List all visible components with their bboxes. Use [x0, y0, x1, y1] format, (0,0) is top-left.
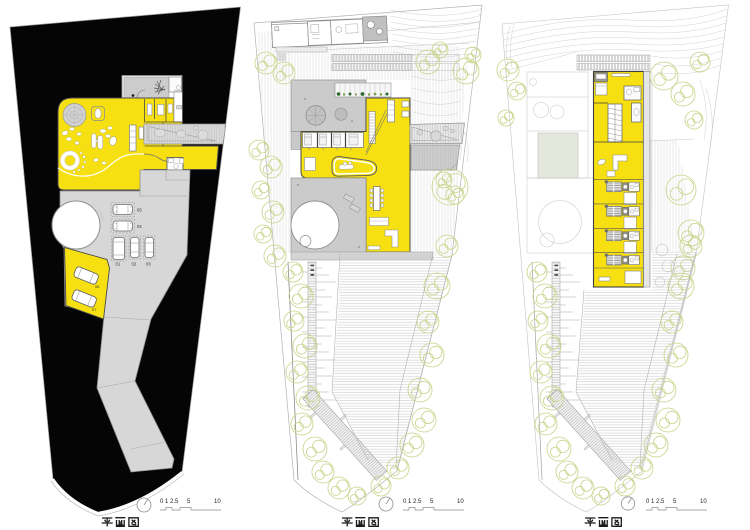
svg-text:0 1 2.5: 0 1 2.5: [646, 499, 665, 505]
svg-text:10: 10: [700, 499, 707, 505]
svg-text:05: 05: [137, 208, 142, 213]
svg-text:0 1 2.5: 0 1 2.5: [403, 499, 422, 505]
svg-text:02: 02: [132, 262, 137, 267]
svg-text:10: 10: [214, 499, 221, 505]
svg-text:04: 04: [137, 224, 142, 229]
svg-text:0 1 2.5: 0 1 2.5: [160, 499, 179, 505]
svg-text:01: 01: [116, 262, 121, 267]
svg-text:07: 07: [92, 307, 97, 312]
svg-text:03: 03: [146, 262, 151, 267]
svg-text:06: 06: [95, 284, 100, 289]
svg-text:10: 10: [457, 499, 464, 505]
